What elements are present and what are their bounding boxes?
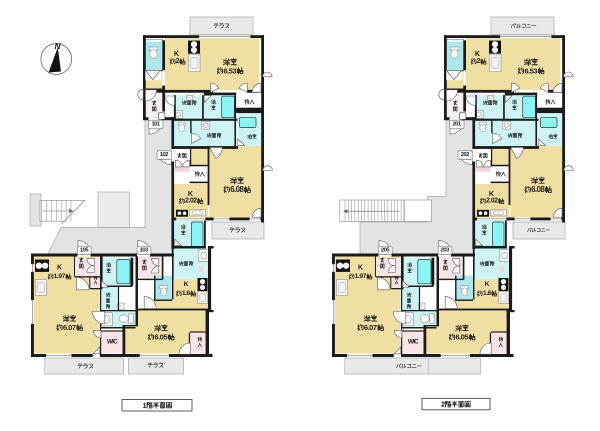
svg-text:205: 205 (381, 248, 390, 254)
svg-text:2.02: 2.02 (185, 198, 197, 205)
svg-text:2: 2 (441, 400, 445, 409)
svg-text:N: N (55, 42, 61, 51)
svg-text:WIC: WIC (107, 339, 118, 346)
svg-text:6.05: 6.05 (154, 333, 168, 342)
svg-text:WIC: WIC (408, 339, 419, 346)
svg-text:203: 203 (441, 248, 450, 254)
svg-text:6.53: 6.53 (524, 66, 537, 75)
svg-text:101: 101 (151, 122, 160, 128)
svg-text:2.02: 2.02 (486, 198, 498, 205)
svg-text:K: K (475, 49, 481, 58)
svg-text:105: 105 (80, 248, 89, 254)
svg-text:102: 102 (160, 152, 169, 158)
svg-text:6.53: 6.53 (223, 66, 236, 75)
svg-text:6.07: 6.07 (63, 323, 76, 332)
svg-text:103: 103 (140, 248, 149, 254)
svg-text:6.07: 6.07 (364, 323, 377, 332)
svg-text:201: 201 (452, 122, 461, 128)
svg-text:6.08: 6.08 (230, 185, 244, 194)
svg-text:K: K (485, 281, 490, 288)
svg-text:1.8: 1.8 (483, 290, 492, 297)
svg-text:1.8: 1.8 (182, 290, 191, 297)
svg-text:6.08: 6.08 (531, 185, 545, 194)
svg-text:2: 2 (477, 58, 481, 65)
svg-text:K: K (358, 265, 363, 272)
svg-text:6.05: 6.05 (455, 333, 469, 342)
svg-text:202: 202 (461, 152, 470, 158)
svg-text:1: 1 (142, 401, 146, 410)
svg-text:K: K (174, 49, 180, 58)
svg-text:1.97: 1.97 (355, 273, 367, 280)
svg-text:1.97: 1.97 (54, 273, 66, 280)
svg-text:K: K (184, 281, 189, 288)
svg-text:2: 2 (176, 58, 180, 65)
svg-text:K: K (57, 265, 62, 272)
